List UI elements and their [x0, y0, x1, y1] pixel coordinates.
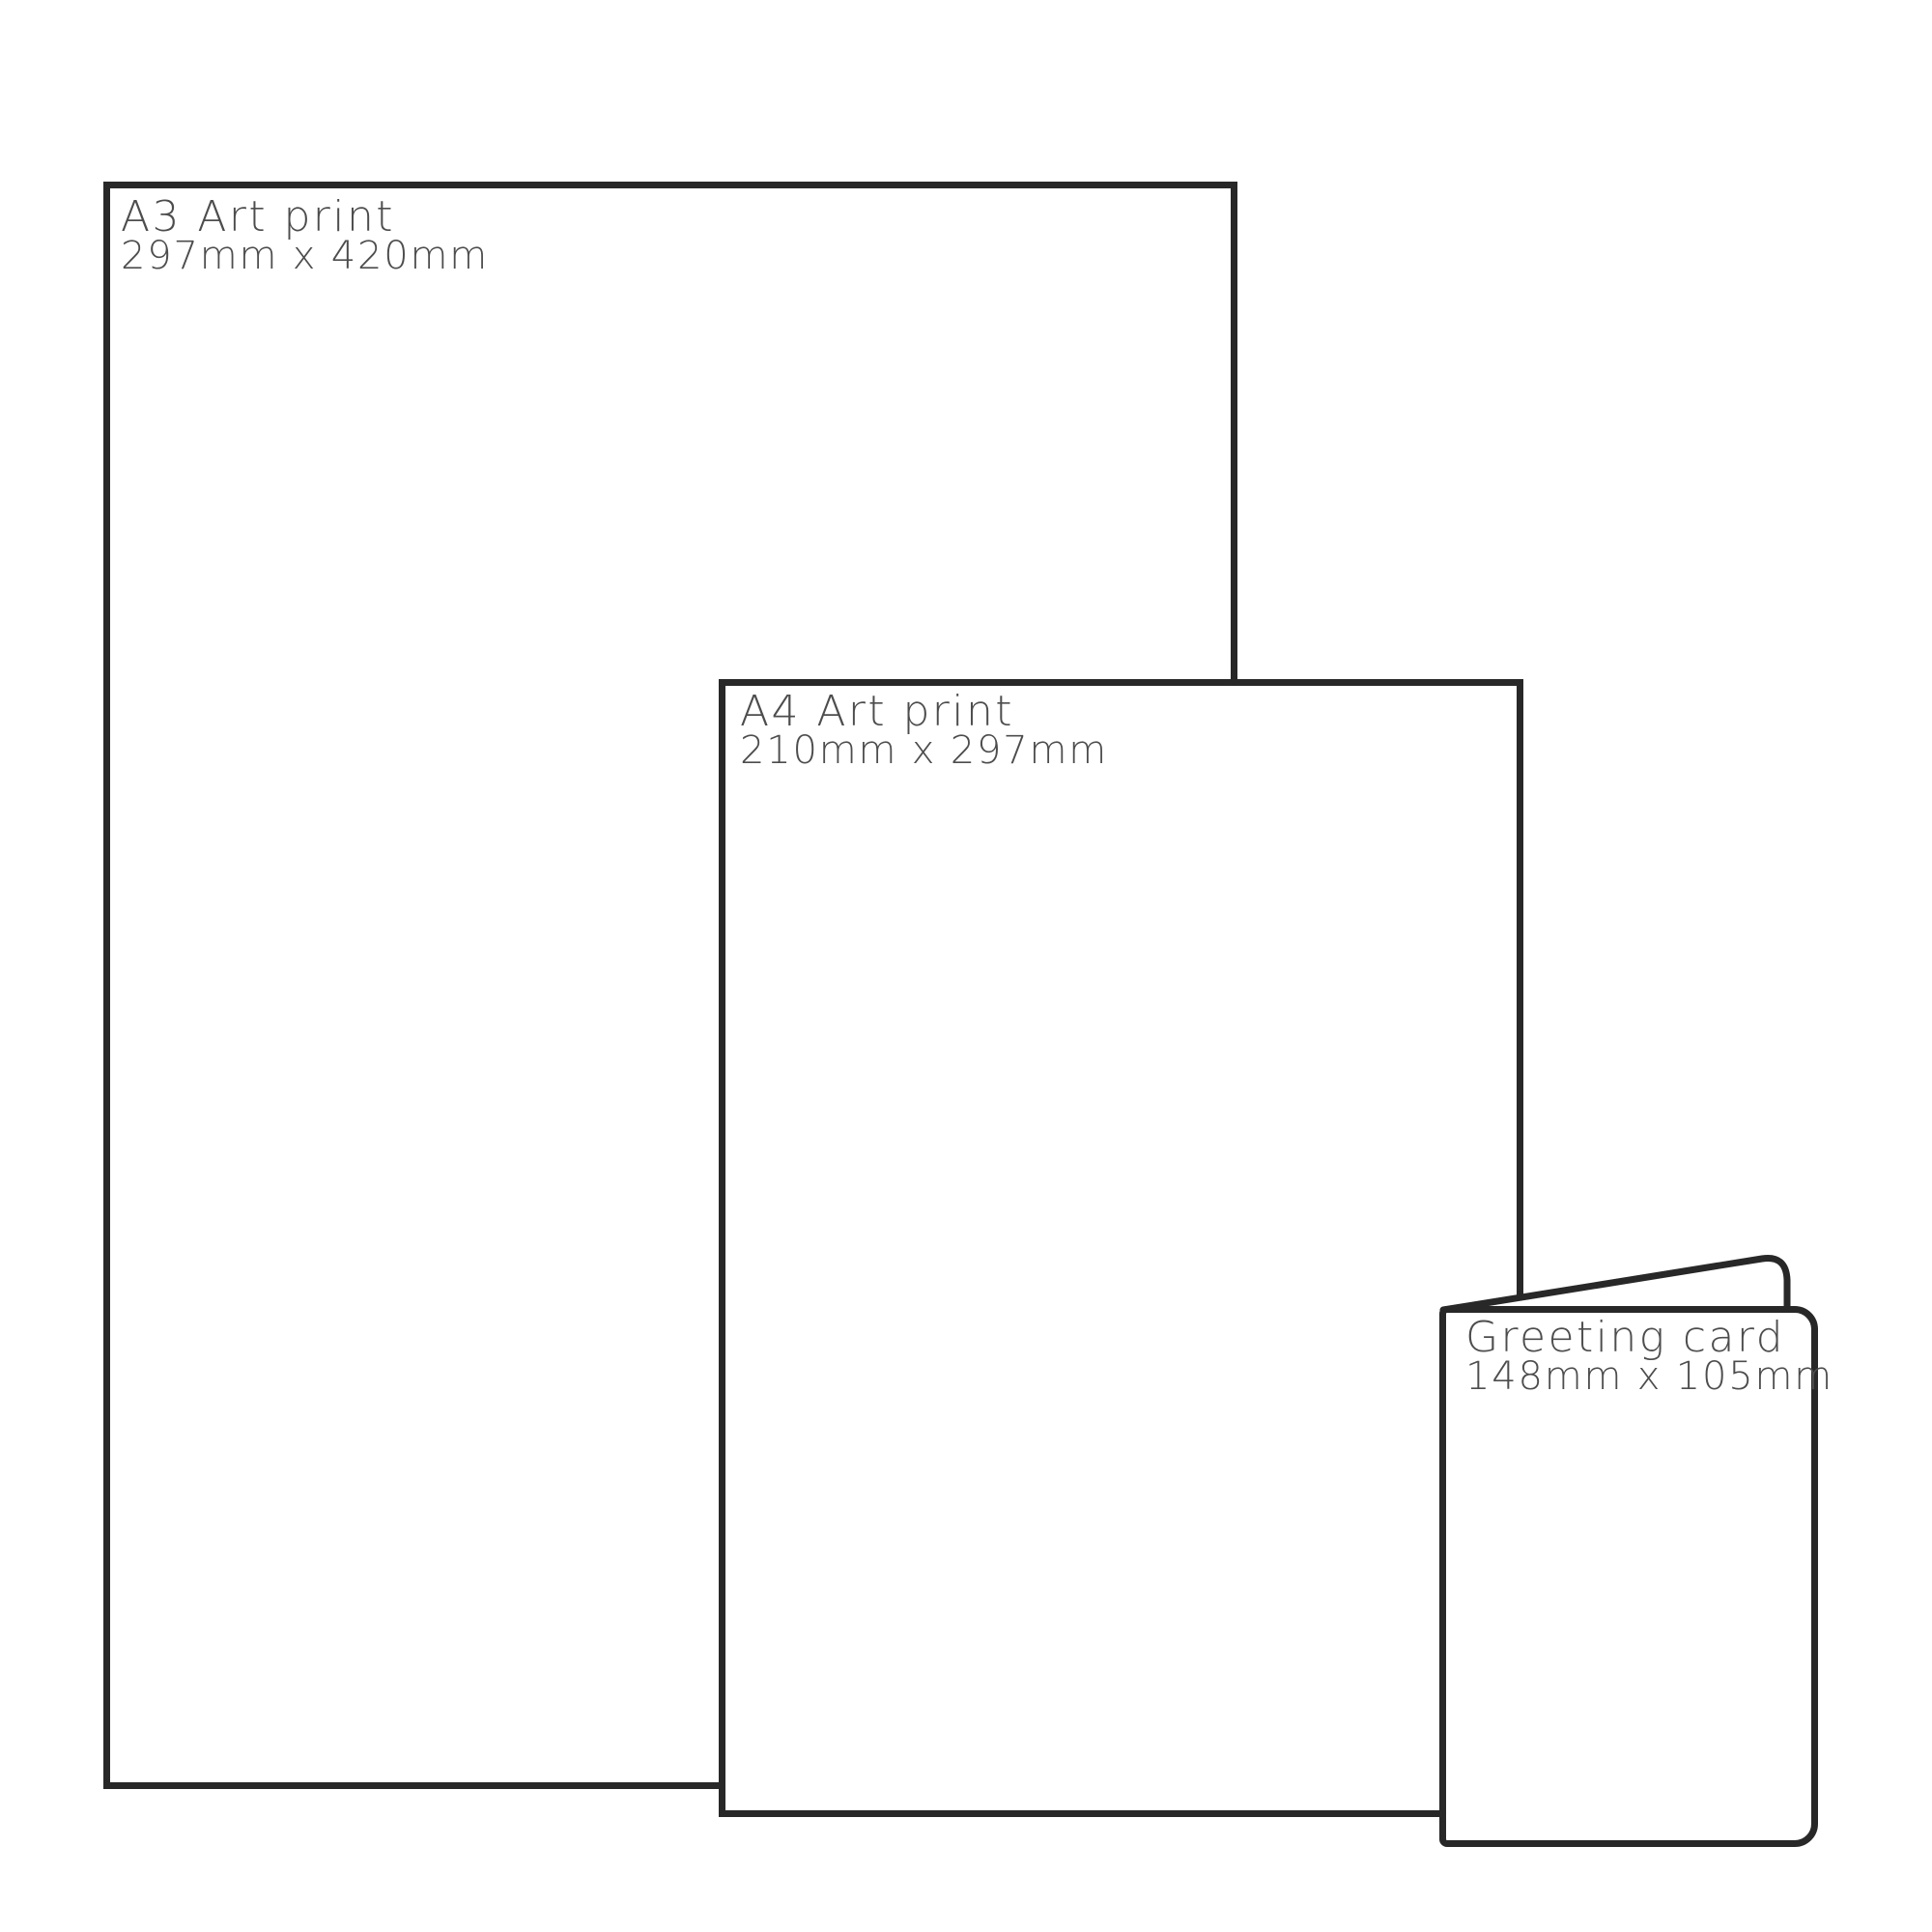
a3-dimensions: 297mm x 420mm [121, 235, 489, 277]
greeting-card-title: Greeting card [1465, 1317, 1833, 1359]
a4-dimensions: 210mm x 297mm [740, 729, 1108, 772]
size-comparison-diagram: A3 Art print 297mm x 420mm A4 Art print … [0, 0, 1932, 1932]
a4-art-print-outline [719, 679, 1523, 1817]
a4-title: A4 Art print [740, 691, 1108, 733]
a3-title: A3 Art print [121, 196, 489, 239]
a3-label: A3 Art print 297mm x 420mm [121, 196, 489, 277]
greeting-card-dimensions: 148mm x 105mm [1465, 1355, 1833, 1398]
a4-label: A4 Art print 210mm x 297mm [740, 691, 1108, 772]
greeting-card-label: Greeting card 148mm x 105mm [1465, 1317, 1833, 1398]
